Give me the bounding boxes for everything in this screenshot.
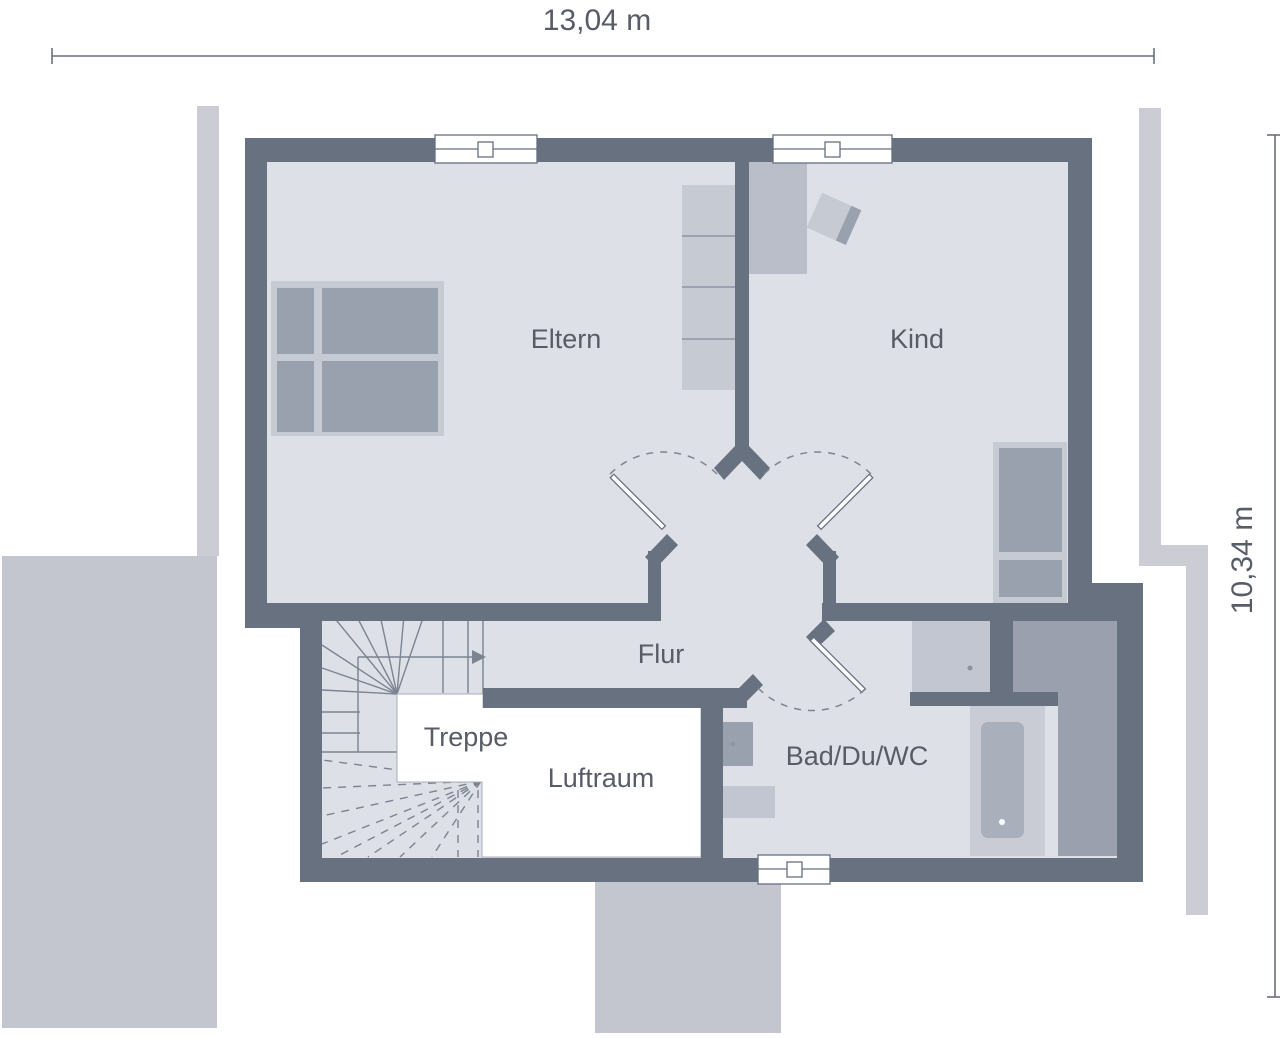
toilet xyxy=(723,722,753,766)
wardrobe-eltern xyxy=(682,185,735,390)
floor-plan-page: 13,04 m 10,34 m Eltern Kind Flur Treppe … xyxy=(0,0,1280,1038)
block-bottom-center xyxy=(595,882,781,1033)
wall-left xyxy=(245,138,267,628)
wall-right-step xyxy=(1092,583,1143,621)
room-label-luftraum: Luftraum xyxy=(548,763,655,793)
wall-top xyxy=(245,138,1092,162)
window-pane-icon xyxy=(478,142,493,157)
terrace-block-left xyxy=(2,556,217,1028)
window-eltern xyxy=(435,135,537,163)
desk xyxy=(749,162,807,274)
window-bad xyxy=(758,855,830,884)
wall-bad-left xyxy=(701,697,723,858)
floor-plan-drawing: 13,04 m 10,34 m Eltern Kind Flur Treppe … xyxy=(0,0,1280,1038)
dimension-height: 10,34 m xyxy=(1226,135,1280,997)
room-label-kind: Kind xyxy=(890,324,944,354)
wall-divider xyxy=(735,160,749,450)
room-label-eltern: Eltern xyxy=(531,324,602,354)
washbasin xyxy=(723,786,775,818)
bed-mattress xyxy=(322,361,438,432)
bed-mattress xyxy=(322,288,438,354)
bathtub-drain xyxy=(999,819,1005,825)
shower xyxy=(912,618,990,692)
dimension-width-label: 13,04 m xyxy=(543,4,651,37)
bathtub xyxy=(970,706,1045,856)
roof-edge-left-strip xyxy=(197,106,219,556)
room-label-treppe: Treppe xyxy=(424,722,509,752)
dimension-height-label: 10,34 m xyxy=(1226,506,1259,614)
bed-pillow xyxy=(277,288,314,354)
wall-bad-inner xyxy=(910,692,1058,706)
window-kind xyxy=(773,135,892,163)
wardrobe-kind xyxy=(993,442,1067,603)
room-label-flur: Flur xyxy=(638,639,685,669)
dimension-width: 13,04 m xyxy=(52,4,1154,64)
window-pane-icon xyxy=(825,142,840,157)
window-pane-icon xyxy=(787,862,802,877)
flur-passage xyxy=(661,600,822,620)
wall-bottom xyxy=(300,858,1143,882)
wall-right xyxy=(1068,138,1092,607)
bed xyxy=(271,281,444,436)
bed-pillow xyxy=(277,361,314,432)
wall-lower-left xyxy=(300,615,322,882)
shower-drain xyxy=(968,666,973,671)
room-label-bad: Bad/Du/WC xyxy=(786,741,929,771)
wall-shower-stub xyxy=(990,618,1013,692)
wall-lower-right xyxy=(1117,621,1143,882)
roof-edge-right-strip xyxy=(1139,108,1208,915)
